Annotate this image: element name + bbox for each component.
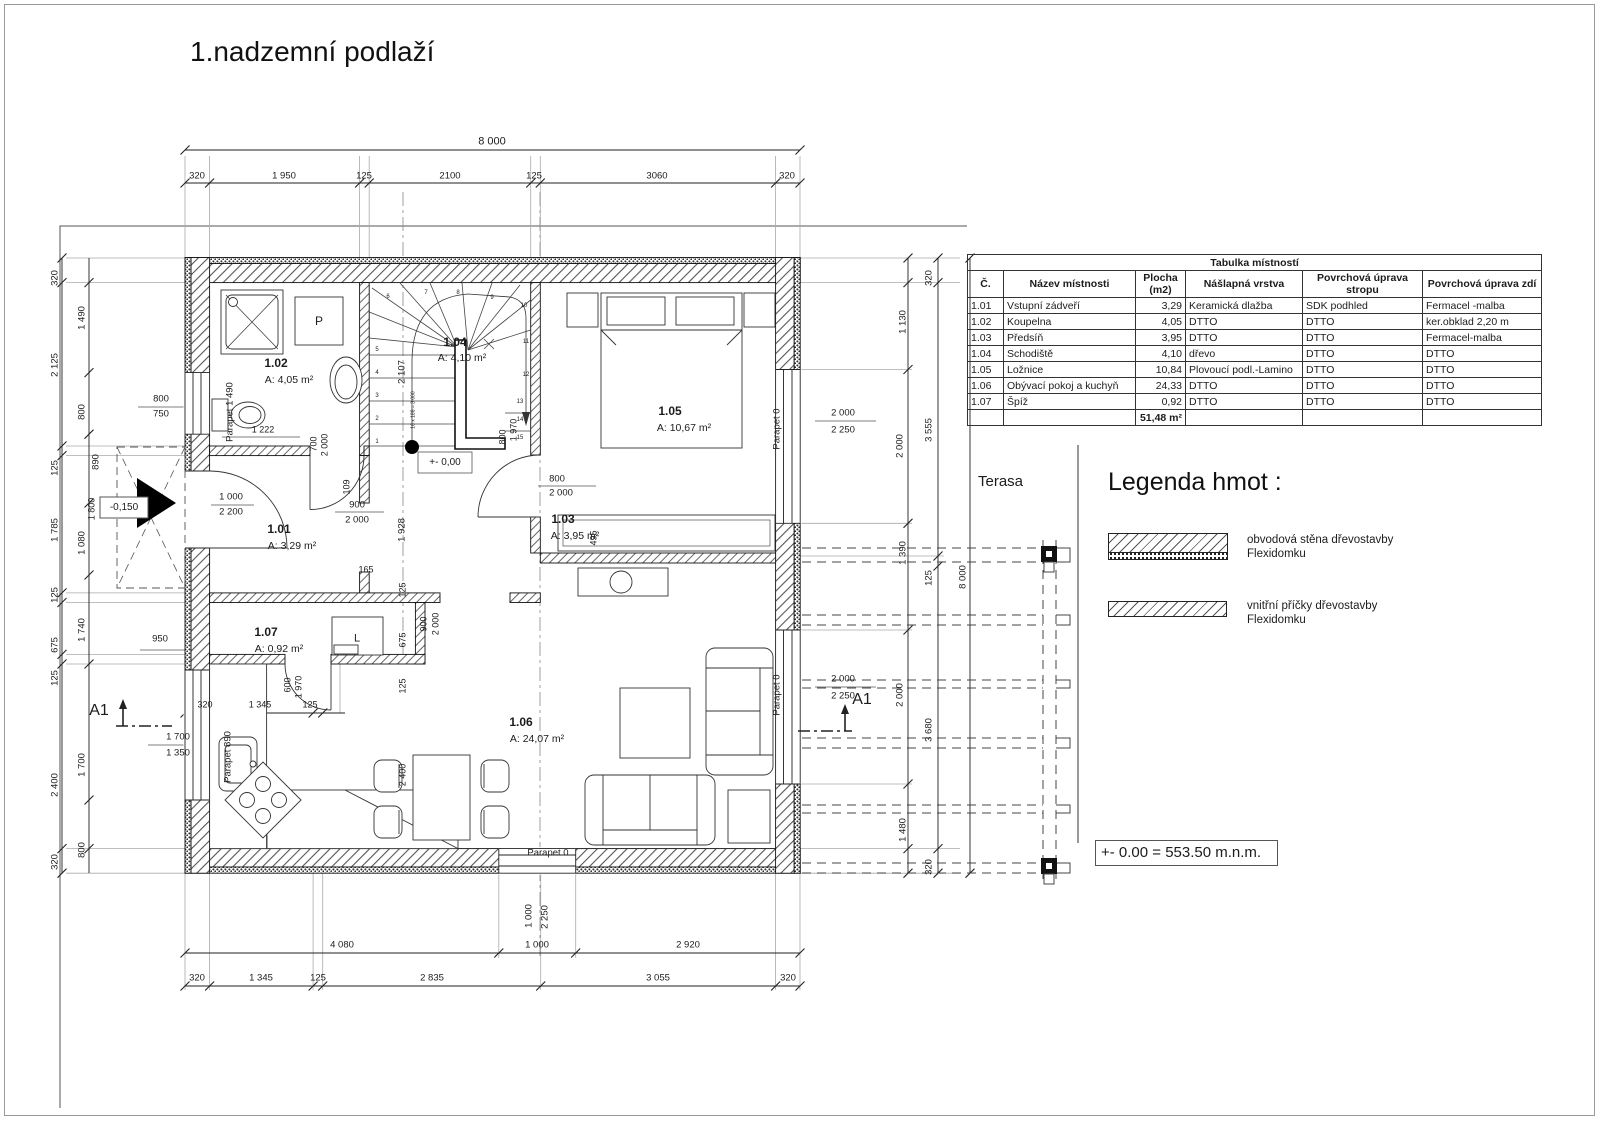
- elevation-note: +- 0.00 = 553.50 m.n.m.: [1095, 840, 1278, 866]
- room-table-cell: Fermacel-malba: [1423, 330, 1542, 346]
- room-table-cell: 1.03: [968, 330, 1004, 346]
- pillow: [676, 297, 734, 325]
- room-table-cell: 4,10: [1136, 346, 1186, 362]
- room-table-cell: 0,92: [1136, 394, 1186, 410]
- room-table-cell: DTTO: [1423, 394, 1542, 410]
- entrance-markers: [100, 447, 185, 588]
- room-table-cell: [1004, 410, 1136, 426]
- staircase: [369, 283, 531, 473]
- room-table-cell: 3,29: [1136, 298, 1186, 314]
- legend-text: Flexidomku: [1247, 547, 1393, 561]
- level-tag-box: [418, 452, 472, 473]
- coffee-table: [620, 688, 690, 758]
- chair: [374, 760, 402, 792]
- sofa: [706, 648, 773, 775]
- room-table-cell: Špíž: [1004, 394, 1136, 410]
- floorplan-sheet: 1.nadzemní podlaží Terasa Legenda hmot :…: [0, 0, 1600, 1121]
- dining-table: [413, 755, 470, 840]
- room-table-cell: Fermacel -malba: [1423, 298, 1542, 314]
- room-table-cell: Koupelna: [1004, 314, 1136, 330]
- wardrobe: [558, 515, 775, 551]
- nightstand: [567, 293, 598, 327]
- side-table: [728, 790, 770, 843]
- room-table-cell: Předsíň: [1004, 330, 1136, 346]
- room-table-total-row: 51,48 m²: [968, 410, 1542, 426]
- room-table-cell: [1303, 410, 1423, 426]
- legend-item-label: obvodová stěna dřevostavby Flexidomku: [1247, 533, 1393, 562]
- room-table-cell: [1423, 410, 1542, 426]
- room-table-cell: DTTO: [1303, 362, 1423, 378]
- room-table-cell: DTTO: [1303, 394, 1423, 410]
- entry-level-box: [100, 497, 148, 518]
- room-table-header: Povrchová úprava stropu: [1303, 271, 1423, 298]
- nightstand: [744, 293, 775, 327]
- room-table-cell: Ložnice: [1004, 362, 1136, 378]
- room-table-cell: DTTO: [1186, 314, 1303, 330]
- room-table-cell: [968, 410, 1004, 426]
- room-table-row: 1.02Koupelna4,05DTTODTTOker.obklad 2,20 …: [968, 314, 1542, 330]
- room-table-header: Plocha (m2): [1136, 271, 1186, 298]
- room-table-cell: [1186, 410, 1303, 426]
- legend-text: Flexidomku: [1247, 613, 1377, 627]
- room-table-total: 51,48 m²: [1136, 410, 1186, 426]
- room-table-cell: 3,95: [1136, 330, 1186, 346]
- legend-swatch-interior-partition: [1108, 601, 1227, 617]
- washer-box: [295, 297, 343, 345]
- terrace-label: Terasa: [978, 473, 1023, 490]
- legend-text: obvodová stěna dřevostavby: [1247, 533, 1393, 547]
- chair: [374, 806, 402, 838]
- chair: [481, 760, 509, 792]
- room-table-cell: Obývací pokoj a kuchyň: [1004, 378, 1136, 394]
- room-table-header: Nášlapná vrstva: [1186, 271, 1303, 298]
- kitchen-furniture: [210, 664, 509, 849]
- room-table-cell: DTTO: [1423, 346, 1542, 362]
- room-table-cell: DTTO: [1303, 330, 1423, 346]
- room-table-cell: DTTO: [1303, 378, 1423, 394]
- room-table-cell: DTTO: [1186, 330, 1303, 346]
- room-table-header: Č.: [968, 271, 1004, 298]
- living-room-furniture: [578, 568, 773, 845]
- legend-title: Legenda hmot :: [1108, 468, 1282, 497]
- wc-tank: [212, 399, 228, 431]
- room-table-cell: 24,33: [1136, 378, 1186, 394]
- room-table-cell: DTTO: [1423, 362, 1542, 378]
- legend-item-label: vnitřní příčky dřevostavby Flexidomku: [1247, 599, 1377, 628]
- room-table-cell: Keramická dlažba: [1186, 298, 1303, 314]
- bathroom-fixtures: [212, 290, 362, 431]
- room-table-cell: Schodiště: [1004, 346, 1136, 362]
- room-table-row: 1.01Vstupní zádveří3,29Keramická dlažbaS…: [968, 298, 1542, 314]
- shower-head: [229, 298, 238, 307]
- room-table-cell: SDK podhled: [1303, 298, 1423, 314]
- pantry-closet: [332, 617, 383, 655]
- room-table-cell: 1.01: [968, 298, 1004, 314]
- room-table-cell: 1.05: [968, 362, 1004, 378]
- room-table-row: 1.06Obývací pokoj a kuchyň24,33DTTODTTOD…: [968, 378, 1542, 394]
- room-table-cell: Plovoucí podl.-Lamino: [1186, 362, 1303, 378]
- room-table-row: 1.04Schodiště4,10dřevoDTTODTTO: [968, 346, 1542, 362]
- room-table-body: Tabulka místnostíČ.Název místnostiPlocha…: [968, 255, 1542, 426]
- page-title: 1.nadzemní podlaží: [190, 38, 434, 66]
- chair: [481, 806, 509, 838]
- room-table-cell: DTTO: [1303, 346, 1423, 362]
- room-table-cell: 1.04: [968, 346, 1004, 362]
- room-table-cell: DTTO: [1186, 394, 1303, 410]
- pillow: [607, 297, 665, 325]
- sideboard: [578, 568, 668, 596]
- room-table-header: Povrchová úprava zdí: [1423, 271, 1542, 298]
- room-table: Tabulka místnostíČ.Název místnostiPlocha…: [967, 254, 1542, 426]
- room-table-cell: 1.02: [968, 314, 1004, 330]
- room-table-row: 1.03Předsíň3,95DTTODTTOFermacel-malba: [968, 330, 1542, 346]
- room-table-cell: 4,05: [1136, 314, 1186, 330]
- level-marker-dot: [405, 440, 419, 454]
- room-table-cell: ker.obklad 2,20 m: [1423, 314, 1542, 330]
- room-table-cell: DTTO: [1423, 378, 1542, 394]
- legend-swatch-exterior-wall: [1108, 533, 1228, 553]
- room-table-header: Název místnosti: [1004, 271, 1136, 298]
- room-table-cell: dřevo: [1186, 346, 1303, 362]
- legend-swatch-exterior-insulation: [1108, 552, 1228, 560]
- room-table-row: 1.05Ložnice10,84Plovoucí podl.-LaminoDTT…: [968, 362, 1542, 378]
- room-table-cell: 10,84: [1136, 362, 1186, 378]
- bedroom-furniture: [558, 293, 775, 551]
- room-table-cell: Vstupní zádveří: [1004, 298, 1136, 314]
- room-table-cell: DTTO: [1186, 378, 1303, 394]
- room-table-title: Tabulka místností: [968, 255, 1542, 271]
- room-table-cell: 1.07: [968, 394, 1004, 410]
- room-table-cell: DTTO: [1303, 314, 1423, 330]
- room-table-row: 1.07Špíž0,92DTTODTTODTTO: [968, 394, 1542, 410]
- legend-text: vnitřní příčky dřevostavby: [1247, 599, 1377, 613]
- room-table-cell: 1.06: [968, 378, 1004, 394]
